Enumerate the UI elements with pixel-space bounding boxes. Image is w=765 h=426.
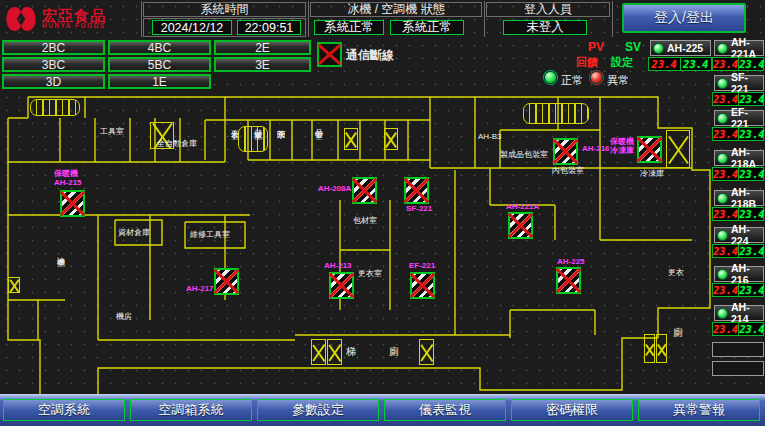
device-label: EF-221: [409, 262, 435, 271]
device-marker-comm-fail[interactable]: [404, 177, 429, 204]
stairs-icon: [30, 99, 80, 116]
room-label: 茶水間: [276, 123, 285, 126]
nav-button-password-auth[interactable]: 密碼權限: [511, 399, 633, 421]
elevator-icon: [344, 128, 358, 150]
stairs-icon: [523, 103, 589, 124]
device-marker-comm-fail[interactable]: [352, 177, 377, 204]
device-label: AH-213: [324, 262, 352, 271]
room-label: 內包裝室: [552, 166, 584, 175]
device-label-line1: AH-216: [582, 144, 610, 153]
device-label: AH-221A: [506, 203, 539, 212]
elevator-icon: [8, 277, 20, 293]
nav-button-ahu-system[interactable]: 空調箱系統: [130, 399, 252, 421]
elevator-icon: [656, 334, 667, 363]
nav-button-ac-system[interactable]: 空調系統: [3, 399, 125, 421]
elevator-icon: [384, 128, 398, 150]
device-label: AH-216: [582, 145, 610, 154]
device-marker-comm-fail[interactable]: [329, 272, 354, 299]
room-label: 全自動倉庫: [157, 139, 197, 148]
room-label: 更衣: [668, 268, 684, 277]
elevator-icon: [327, 339, 342, 365]
device-label-line1: SF-221: [406, 204, 432, 213]
room-label: 冷凍庫: [640, 169, 664, 178]
device-label: AH-208A: [318, 185, 351, 194]
device-marker-comm-fail[interactable]: [410, 272, 435, 299]
device-label-line1: AH-213: [324, 261, 352, 270]
nav-button-alarm[interactable]: 異常警報: [638, 399, 760, 421]
room-label: 更衣室: [358, 269, 382, 278]
device-label-line1: AH-208A: [318, 184, 351, 193]
device-marker-comm-fail[interactable]: [60, 190, 85, 217]
device-label: AH-225: [557, 258, 585, 267]
stairs-icon: [238, 126, 268, 152]
device-label-line1: AH-225: [557, 257, 585, 266]
room-label: 包材室: [353, 216, 377, 225]
room-label: 製成品包裝室: [500, 150, 548, 159]
device-marker-comm-fail[interactable]: [637, 136, 662, 163]
room-label: 更衣室: [230, 123, 239, 126]
device-label-line1: AH-221A: [506, 202, 539, 211]
bottom-nav-bar: 空調系統 空調箱系統 參數設定 儀表監視 密碼權限 異常警報: [0, 394, 765, 426]
room-label: 維修工具室: [190, 230, 230, 239]
device-label-line1: AH-217: [186, 284, 214, 293]
device-label: SF-221: [406, 205, 432, 214]
device-label: 保暖機冷凍庫: [610, 138, 634, 155]
elevator-icon: [311, 339, 326, 365]
room-label: 廁: [673, 328, 683, 337]
elevator-icon: [419, 339, 434, 365]
nav-button-param-settings[interactable]: 參數設定: [257, 399, 379, 421]
elevator-icon: [644, 334, 655, 363]
device-label: AH-217: [186, 285, 214, 294]
room-label: AH-B3: [478, 132, 502, 141]
device-label: 保暖機AH-215: [54, 170, 82, 187]
room-label: 儲藏室: [253, 123, 262, 126]
elevator-icon: [666, 130, 690, 168]
device-marker-comm-fail[interactable]: [556, 267, 581, 294]
room-label: 梯: [346, 347, 356, 356]
device-label-line2: 冷凍庫: [610, 146, 634, 155]
nav-button-meter-monitor[interactable]: 儀表監視: [384, 399, 506, 421]
hmi-screen: 宏亞食品 HUNYA FOODS 系統時間 2024/12/12 22:09:5…: [0, 0, 765, 426]
device-marker-comm-fail[interactable]: [508, 212, 533, 239]
room-label: 工具室: [100, 127, 124, 136]
device-label-line1: EF-221: [409, 261, 435, 270]
room-label: 資材倉庫: [118, 228, 150, 237]
room-label: 冰機室: [56, 250, 65, 253]
room-label: 廁: [389, 347, 399, 356]
room-label: 機房: [116, 312, 132, 321]
device-label-line2: AH-215: [54, 178, 82, 187]
device-marker-comm-fail[interactable]: [214, 268, 239, 295]
device-marker-comm-fail[interactable]: [553, 138, 578, 165]
room-label: 品管室: [314, 123, 323, 126]
